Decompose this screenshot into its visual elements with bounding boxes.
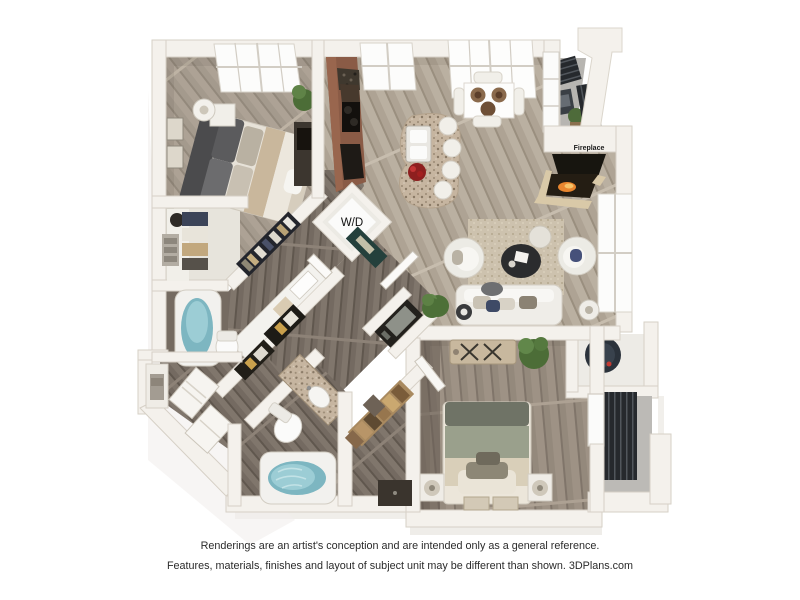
svg-text:W/D: W/D: [341, 217, 363, 229]
svg-text:Fireplace: Fireplace: [574, 145, 605, 152]
